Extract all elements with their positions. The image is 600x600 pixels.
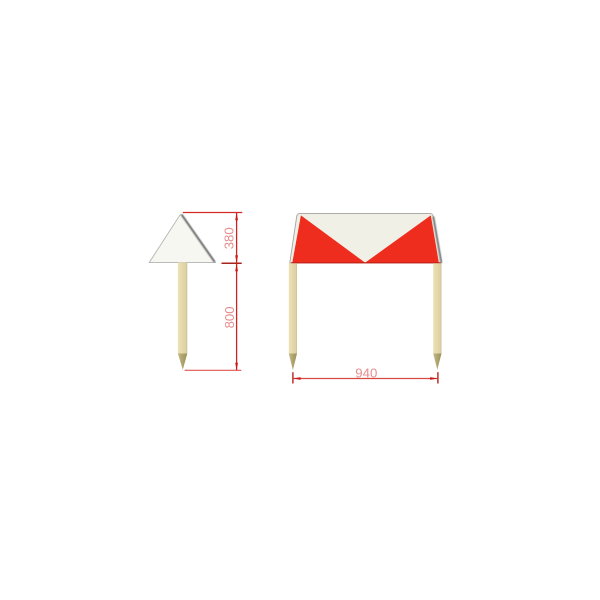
- svg-text:800: 800: [222, 306, 237, 328]
- svg-text:940: 940: [355, 366, 377, 381]
- svg-text:380: 380: [221, 227, 236, 249]
